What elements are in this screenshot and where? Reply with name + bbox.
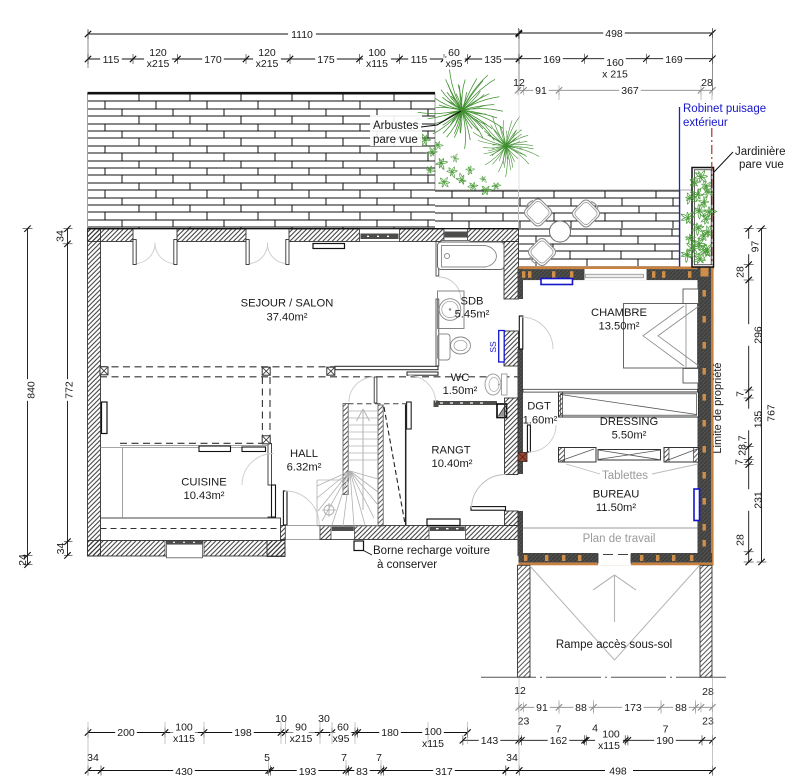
svg-text:97: 97 [749, 241, 761, 253]
svg-text:34: 34 [55, 543, 67, 555]
svg-text:x115: x115 [422, 738, 444, 750]
svg-text:7: 7 [733, 459, 745, 465]
svg-text:767: 767 [765, 404, 777, 422]
svg-text:91: 91 [535, 85, 547, 97]
svg-text:x 215: x 215 [602, 69, 628, 81]
svg-text:7: 7 [663, 724, 669, 736]
svg-text:DRESSING: DRESSING [600, 416, 658, 428]
svg-text:1110: 1110 [291, 29, 313, 41]
svg-text:x115: x115 [598, 740, 620, 752]
svg-text:37.40m²: 37.40m² [266, 312, 307, 324]
svg-text:198: 198 [234, 727, 252, 739]
svg-text:60: 60 [337, 722, 349, 734]
svg-text:34: 34 [54, 230, 66, 242]
svg-text:115: 115 [411, 54, 428, 66]
svg-text:DGT: DGT [527, 401, 551, 413]
svg-text:CHAMBRE: CHAMBRE [591, 307, 647, 319]
svg-text:296: 296 [752, 326, 764, 344]
svg-text:231: 231 [752, 491, 764, 509]
svg-text:430: 430 [175, 766, 193, 778]
svg-text:317: 317 [435, 766, 453, 778]
svg-text:162: 162 [550, 735, 568, 747]
svg-text:HALL: HALL [290, 448, 318, 460]
svg-text:90: 90 [295, 722, 307, 734]
svg-text:11.50m²: 11.50m² [596, 502, 636, 514]
svg-text:7: 7 [734, 391, 746, 397]
svg-text:4: 4 [592, 723, 598, 735]
svg-text:Jardinière: Jardinière [735, 146, 786, 158]
svg-text:34: 34 [506, 752, 518, 764]
svg-text:28,7: 28,7 [736, 435, 748, 456]
svg-text:5.50m²: 5.50m² [612, 430, 647, 442]
svg-text:135: 135 [484, 54, 502, 66]
svg-text:772: 772 [63, 381, 75, 399]
svg-text:x95: x95 [333, 733, 350, 745]
svg-text:173: 173 [624, 702, 642, 714]
svg-text:pare vue: pare vue [373, 134, 418, 146]
svg-text:169: 169 [543, 54, 561, 66]
svg-text:Plan de travail: Plan de travail [583, 533, 656, 545]
svg-text:x115: x115 [173, 733, 195, 745]
svg-text:24: 24 [17, 554, 29, 566]
svg-text:34: 34 [87, 752, 99, 764]
svg-text:28: 28 [734, 534, 746, 546]
svg-text:83: 83 [356, 766, 368, 778]
svg-text:100: 100 [602, 729, 620, 741]
svg-text:169: 169 [665, 54, 683, 66]
svg-text:5.45m²: 5.45m² [455, 309, 490, 321]
svg-text:88: 88 [675, 702, 687, 714]
svg-text:5: 5 [264, 752, 270, 764]
svg-text:12: 12 [514, 685, 526, 697]
svg-text:91: 91 [536, 702, 548, 714]
svg-text:x215: x215 [256, 58, 279, 70]
svg-text:28: 28 [701, 77, 713, 89]
svg-text:115: 115 [103, 54, 120, 66]
svg-text:100: 100 [424, 726, 442, 738]
svg-text:x115: x115 [366, 58, 388, 70]
svg-text:BUREAU: BUREAU [593, 489, 640, 501]
svg-text:pare vue: pare vue [739, 159, 784, 171]
svg-text:x215: x215 [290, 733, 313, 745]
svg-text:498: 498 [605, 28, 623, 40]
svg-text:WC: WC [451, 372, 470, 384]
svg-text:Arbustes: Arbustes [373, 120, 419, 132]
svg-text:367: 367 [621, 85, 639, 97]
svg-text:180: 180 [381, 727, 399, 739]
svg-text:170: 170 [204, 54, 222, 66]
svg-text:1.50m²: 1.50m² [443, 385, 478, 397]
svg-text:200: 200 [117, 727, 135, 739]
svg-text:175: 175 [317, 54, 335, 66]
svg-text:à conserver: à conserver [377, 559, 437, 571]
svg-text:193: 193 [299, 766, 317, 778]
svg-text:6.32m²: 6.32m² [287, 462, 322, 474]
svg-text:Limite de propriété: Limite de propriété [712, 362, 724, 453]
svg-text:28: 28 [734, 266, 746, 278]
svg-text:extérieur: extérieur [683, 117, 728, 129]
svg-text:SS: SS [488, 341, 498, 353]
svg-text:Borne recharge voiture: Borne recharge voiture [373, 545, 490, 557]
svg-text:160: 160 [606, 57, 624, 69]
svg-text:Rampe accès sous-sol: Rampe accès sous-sol [556, 639, 672, 651]
svg-text:SDB: SDB [460, 296, 483, 308]
svg-text:840: 840 [25, 381, 37, 399]
svg-text:x95: x95 [446, 58, 463, 70]
svg-text:143: 143 [481, 735, 499, 747]
svg-text:1.60m²: 1.60m² [523, 415, 558, 427]
svg-text:498: 498 [609, 766, 627, 778]
svg-text:100: 100 [175, 722, 193, 734]
svg-text:7: 7 [556, 724, 562, 736]
svg-text:RANGT: RANGT [431, 445, 470, 457]
svg-text:23: 23 [518, 716, 530, 728]
svg-text:10.40m²: 10.40m² [431, 458, 472, 470]
svg-text:SEJOUR / SALON: SEJOUR / SALON [241, 298, 334, 310]
svg-text:135: 135 [752, 411, 764, 429]
svg-text:10.43m²: 10.43m² [183, 490, 224, 502]
svg-text:x215: x215 [147, 58, 170, 70]
svg-text:CUISINE: CUISINE [181, 477, 226, 489]
svg-text:13.50m²: 13.50m² [598, 321, 639, 333]
svg-text:190: 190 [656, 735, 674, 747]
svg-text:Robinet puisage: Robinet puisage [683, 103, 766, 115]
svg-text:Tablettes: Tablettes [602, 470, 648, 482]
svg-text:88: 88 [575, 702, 587, 714]
